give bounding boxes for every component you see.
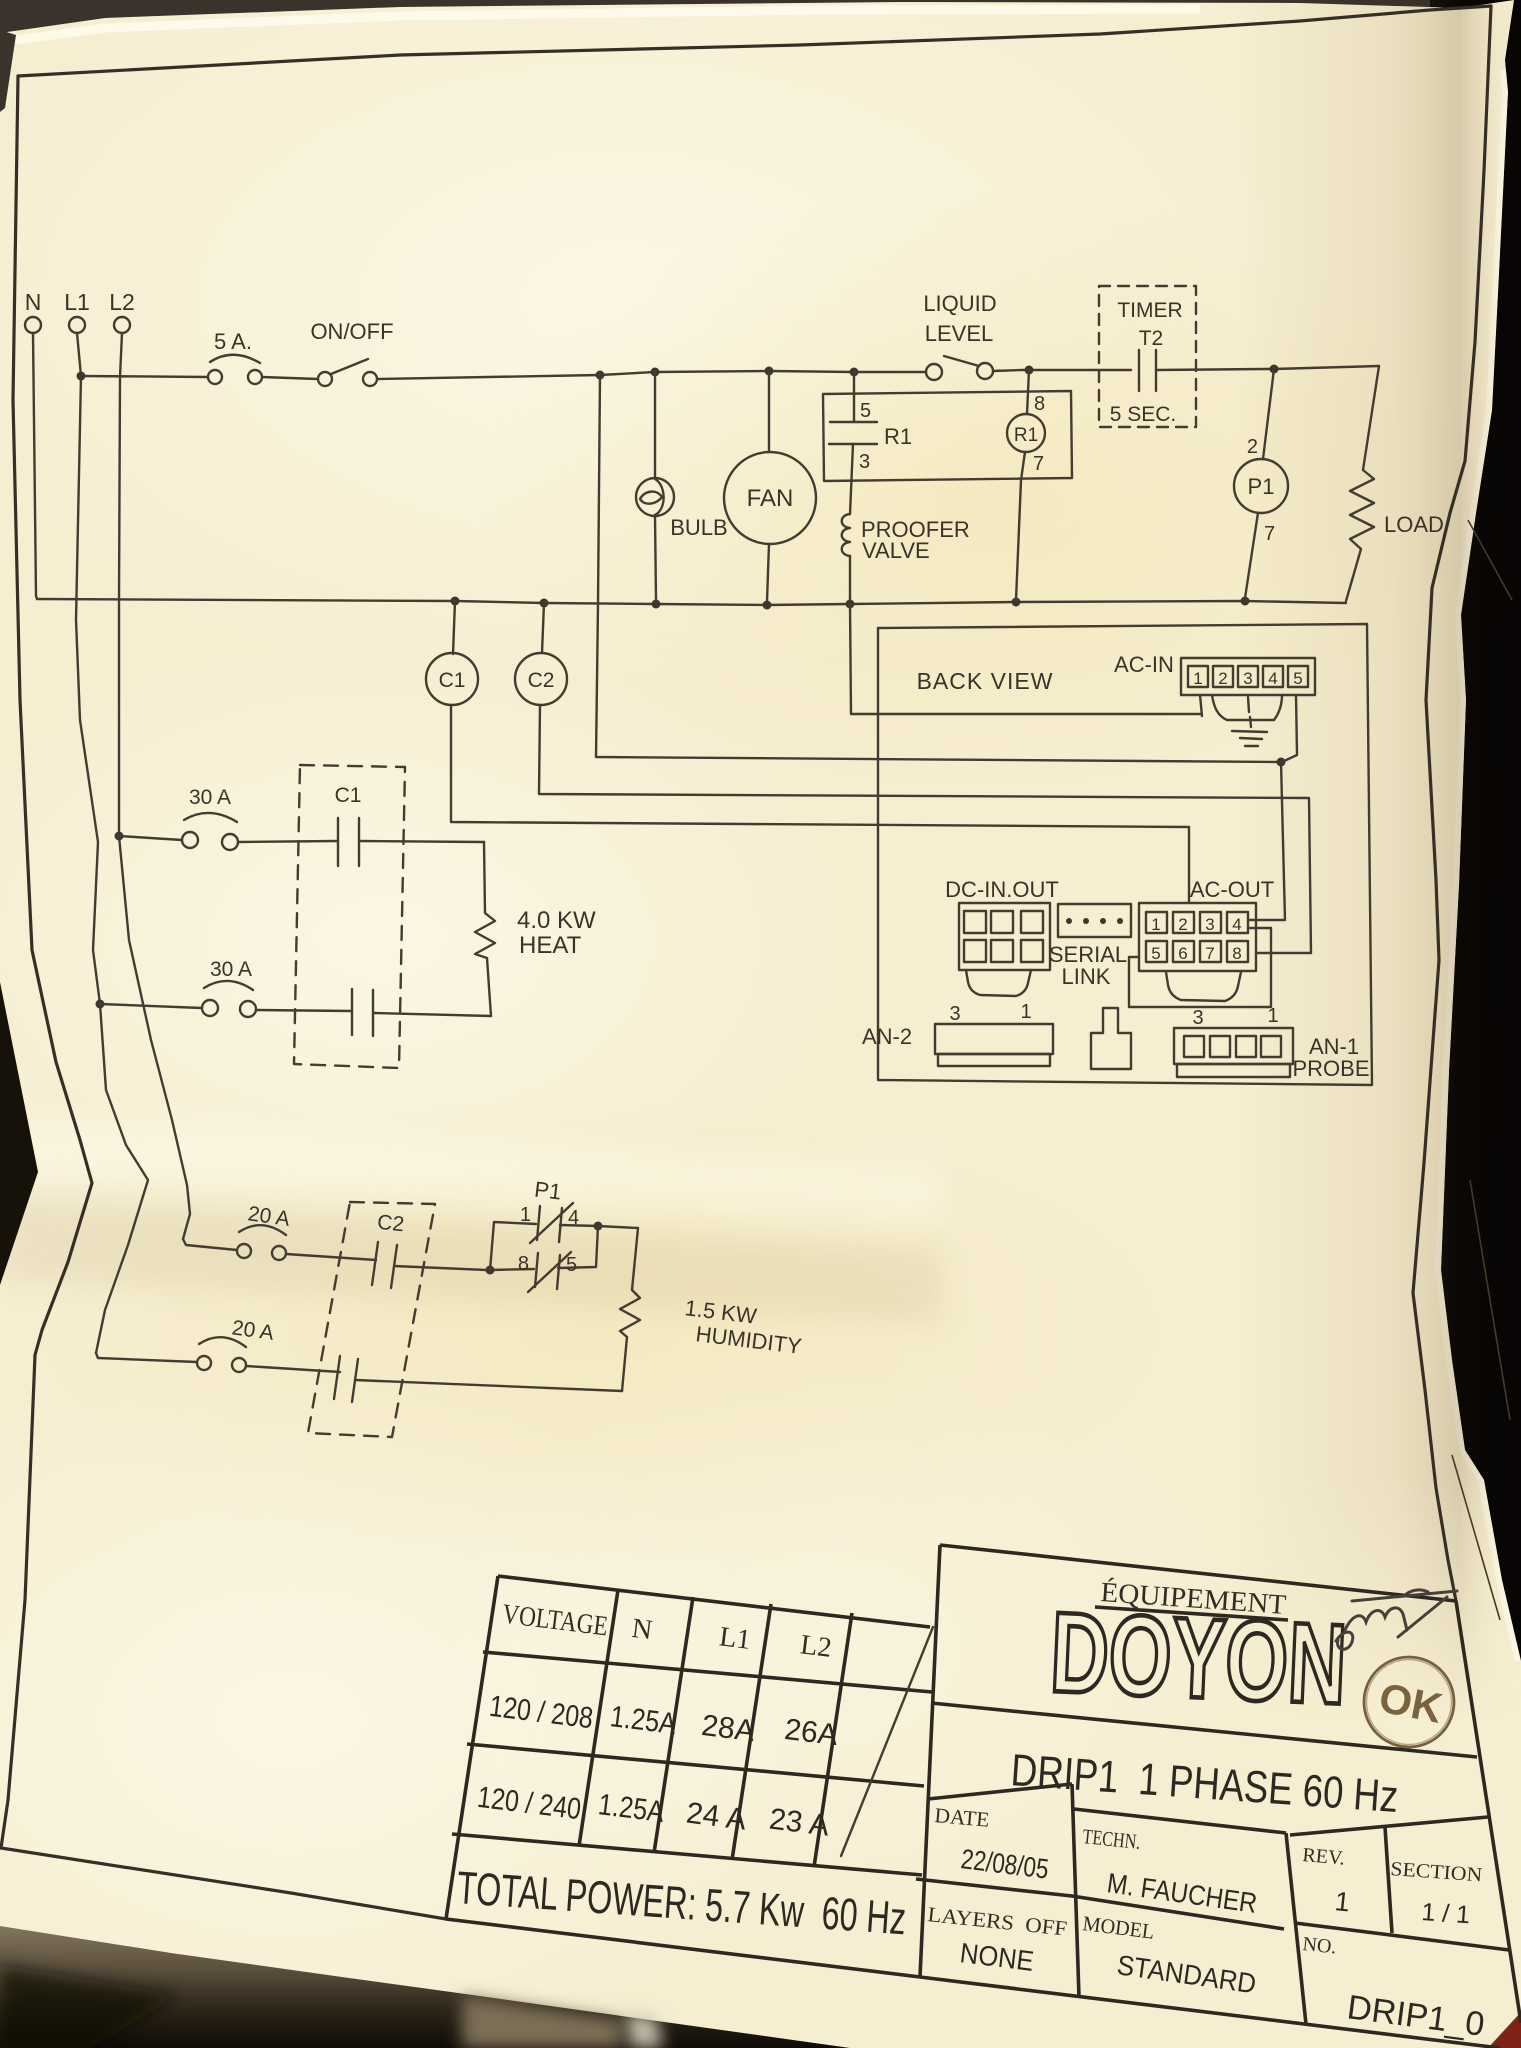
svg-text:1: 1 <box>1193 669 1202 688</box>
svg-text:C1: C1 <box>439 669 466 692</box>
svg-text:LEVEL: LEVEL <box>925 321 994 346</box>
svg-text:1: 1 <box>520 1204 531 1226</box>
svg-text:2: 2 <box>1178 915 1187 934</box>
svg-text:8: 8 <box>1232 944 1241 963</box>
svg-text:NO.: NO. <box>1301 1933 1337 1958</box>
svg-text:R1: R1 <box>884 424 912 449</box>
svg-text:P1: P1 <box>1248 474 1275 499</box>
svg-text:5: 5 <box>860 400 871 422</box>
svg-text:AC-IN: AC-IN <box>1114 652 1174 677</box>
svg-text:2: 2 <box>1247 436 1258 458</box>
svg-text:7: 7 <box>1033 453 1044 475</box>
svg-text:PROBE: PROBE <box>1292 1056 1369 1081</box>
svg-text:8: 8 <box>1034 393 1045 415</box>
svg-text:5: 5 <box>566 1254 577 1276</box>
svg-text:N: N <box>25 289 42 315</box>
svg-text:30 A: 30 A <box>210 958 252 981</box>
svg-text:1 / 1: 1 / 1 <box>1421 1898 1471 1929</box>
svg-text:3: 3 <box>949 1003 960 1025</box>
svg-text:BULB: BULB <box>670 515 727 540</box>
svg-text:C2: C2 <box>528 669 555 692</box>
svg-text:ON/OFF: ON/OFF <box>310 319 393 344</box>
svg-text:C2: C2 <box>376 1211 405 1237</box>
svg-text:HEAT: HEAT <box>519 932 582 959</box>
svg-text:LOAD: LOAD <box>1384 512 1444 537</box>
svg-text:N: N <box>630 1613 654 1646</box>
svg-text:4.0 KW: 4.0 KW <box>517 907 596 934</box>
svg-text:L2: L2 <box>109 289 135 315</box>
svg-text:AN-2: AN-2 <box>862 1024 912 1049</box>
svg-text:1: 1 <box>1151 915 1160 934</box>
svg-text:VALVE: VALVE <box>862 538 930 563</box>
svg-text:2: 2 <box>1218 669 1227 688</box>
svg-text:5: 5 <box>1293 669 1302 688</box>
svg-text:AC-OUT: AC-OUT <box>1190 877 1274 902</box>
svg-text:4: 4 <box>1232 915 1241 934</box>
svg-text:3: 3 <box>859 451 870 473</box>
svg-text:L1: L1 <box>718 1621 753 1656</box>
svg-text:LINK: LINK <box>1062 964 1111 989</box>
svg-text:5 SEC.: 5 SEC. <box>1110 403 1177 426</box>
svg-text:L2: L2 <box>799 1629 834 1664</box>
svg-text:1: 1 <box>1333 1886 1351 1917</box>
svg-text:6: 6 <box>1178 944 1187 963</box>
svg-text:BACK VIEW: BACK VIEW <box>917 668 1054 694</box>
svg-text:REV.: REV. <box>1302 1844 1346 1870</box>
svg-text:5: 5 <box>1151 944 1160 963</box>
svg-text:30 A: 30 A <box>189 786 231 809</box>
svg-text:8: 8 <box>518 1253 529 1275</box>
svg-text:TIMER: TIMER <box>1117 299 1182 322</box>
svg-text:3: 3 <box>1192 1007 1203 1029</box>
svg-text:DOYON: DOYON <box>1048 1589 1349 1729</box>
svg-text:FAN: FAN <box>747 485 794 512</box>
svg-text:C1: C1 <box>335 784 362 807</box>
svg-text:3: 3 <box>1243 669 1252 688</box>
svg-text:L1: L1 <box>64 289 90 315</box>
svg-text:1: 1 <box>1020 1001 1031 1023</box>
svg-text:26A: 26A <box>783 1713 840 1752</box>
svg-text:7: 7 <box>1205 944 1214 963</box>
svg-text:DATE: DATE <box>934 1803 991 1832</box>
svg-text:28A: 28A <box>700 1709 757 1748</box>
svg-text:3: 3 <box>1205 915 1214 934</box>
svg-text:LIQUID: LIQUID <box>923 291 996 316</box>
svg-text:4: 4 <box>1268 669 1277 688</box>
svg-text:T2: T2 <box>1139 327 1164 350</box>
svg-text:DC-IN.OUT: DC-IN.OUT <box>945 877 1059 902</box>
svg-text:4: 4 <box>568 1207 579 1229</box>
svg-text:1: 1 <box>1267 1005 1278 1027</box>
svg-text:5 A.: 5 A. <box>214 329 252 354</box>
svg-text:R1: R1 <box>1014 425 1038 446</box>
svg-text:P1: P1 <box>533 1177 563 1205</box>
svg-text:7: 7 <box>1264 523 1275 545</box>
